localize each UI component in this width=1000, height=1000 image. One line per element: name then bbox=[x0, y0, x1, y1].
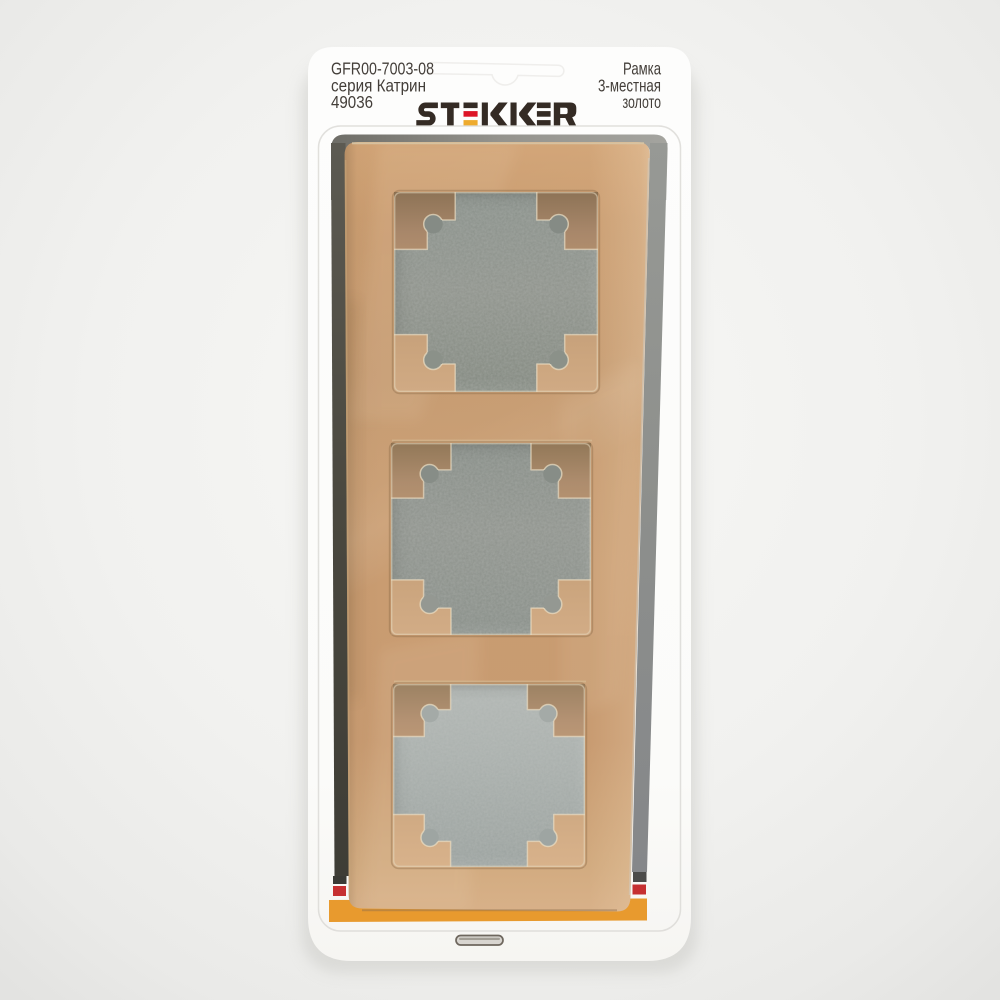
svg-text:49036: 49036 bbox=[331, 92, 373, 112]
svg-text:золото: золото bbox=[623, 92, 662, 112]
